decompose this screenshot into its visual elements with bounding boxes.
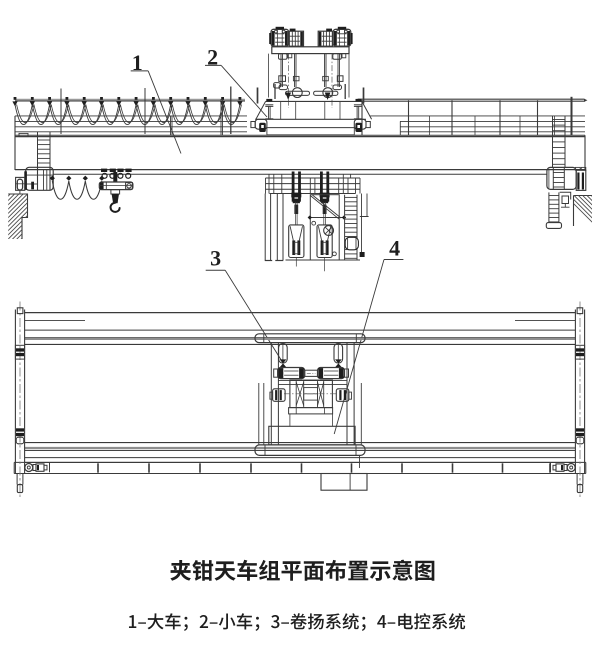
svg-text:4: 4 <box>389 236 400 261</box>
svg-text:3: 3 <box>210 245 221 270</box>
